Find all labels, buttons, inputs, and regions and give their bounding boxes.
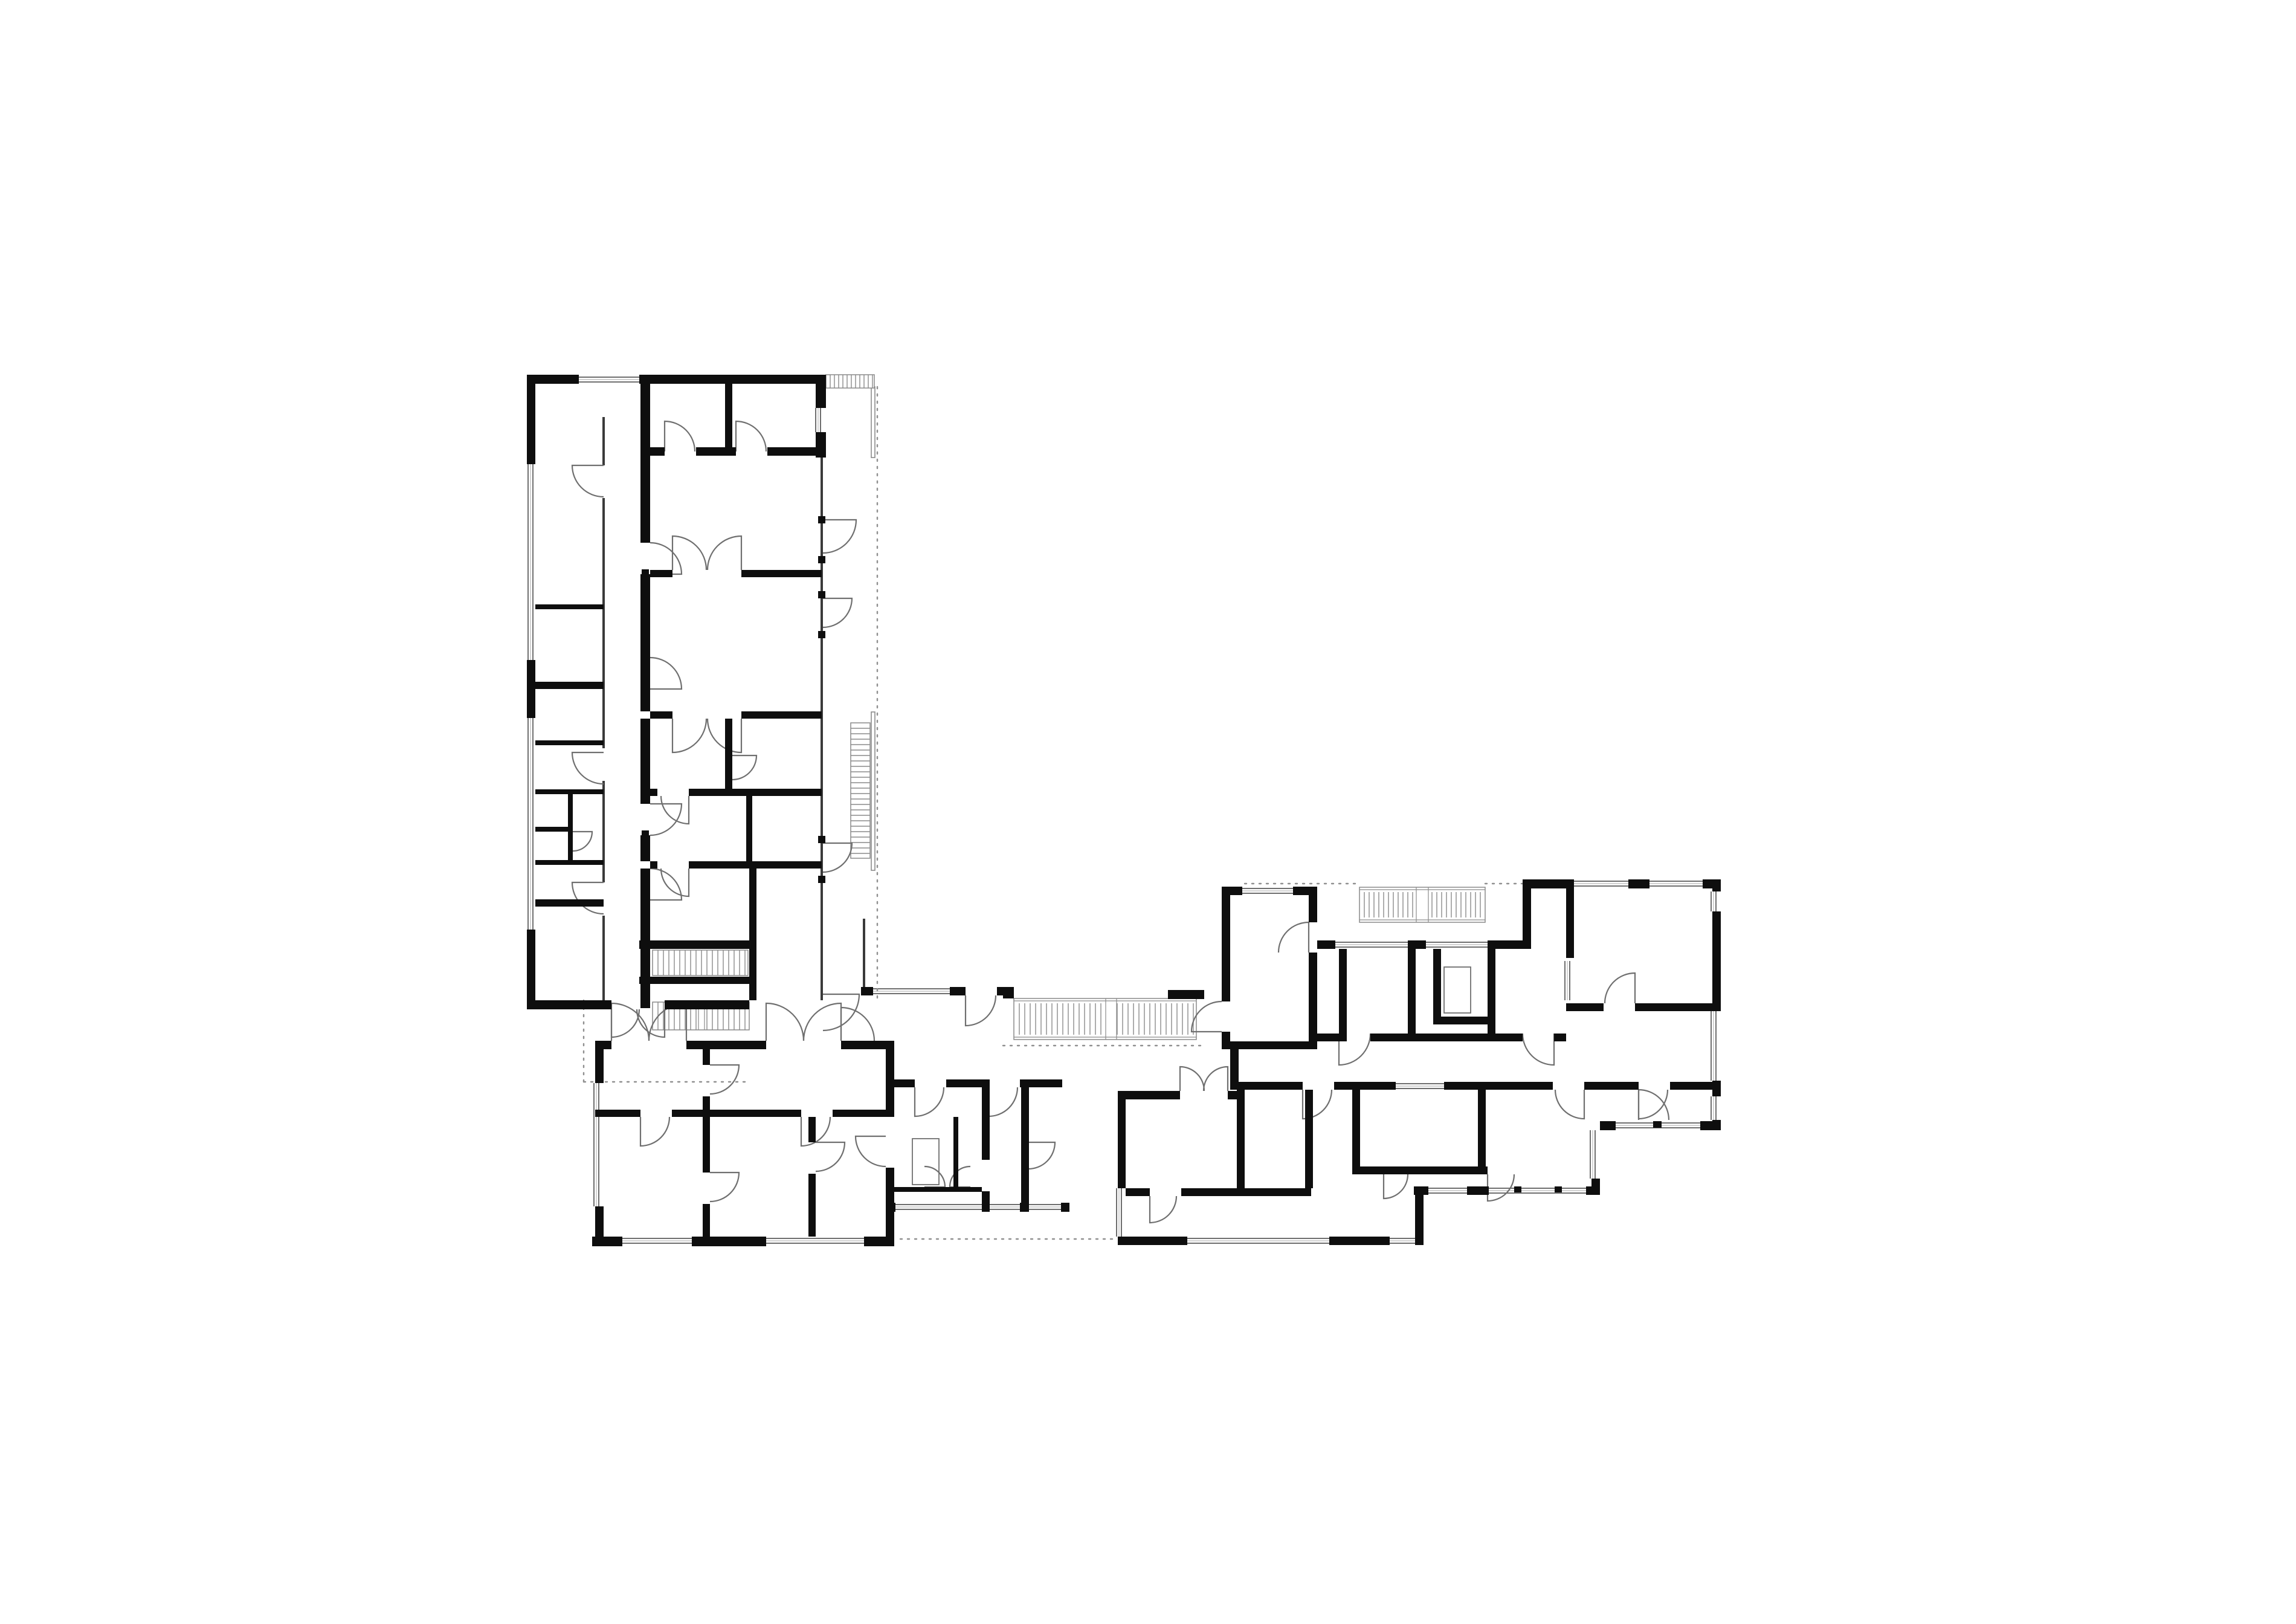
wall-segment <box>1488 1034 1523 1041</box>
floor-plan-figure <box>0 0 2296 1624</box>
wall-segment <box>1478 1090 1486 1166</box>
wall-segment <box>1670 1082 1712 1090</box>
floor-plan-page <box>0 0 2296 1624</box>
wall-segment <box>595 1110 640 1117</box>
wall-segment <box>535 604 604 609</box>
wall-segment <box>1309 953 1317 1041</box>
wall-segment <box>1352 1090 1360 1166</box>
wall-segment <box>725 719 732 789</box>
wall-segment <box>1222 887 1230 1001</box>
wall-segment <box>818 556 825 563</box>
wall-segment <box>1339 949 1347 1041</box>
stair <box>826 375 874 388</box>
wall-segment <box>535 740 604 745</box>
wall-segment <box>1566 1003 1604 1011</box>
wall-segment <box>950 987 966 995</box>
wall-segment <box>642 538 649 543</box>
wall-segment <box>1444 1082 1553 1090</box>
wall-segment <box>1523 879 1531 949</box>
wall-segment <box>1020 1203 1028 1212</box>
wall-segment <box>1126 1188 1150 1196</box>
wall-segment <box>1488 940 1529 949</box>
wall-segment <box>1168 990 1204 999</box>
wall-segment <box>894 1079 915 1087</box>
wall-segment <box>1712 1081 1721 1096</box>
wall-segment <box>703 1204 710 1237</box>
railing-edge <box>871 387 875 458</box>
wall-segment <box>1309 894 1317 922</box>
wall-segment <box>1305 1090 1313 1188</box>
stair <box>1359 887 1485 922</box>
wall-segment <box>1600 1121 1616 1130</box>
wall-segment <box>1061 1203 1069 1212</box>
wall-segment <box>535 860 604 865</box>
wall-segment <box>1237 1188 1311 1196</box>
wall-segment <box>1126 1091 1180 1099</box>
wall-segment <box>1467 1186 1489 1195</box>
wall-segment <box>535 899 604 907</box>
wall-segment <box>640 940 650 1008</box>
wall-segment <box>592 1237 622 1246</box>
stair-outline <box>851 723 870 858</box>
wall-segment <box>527 1000 611 1009</box>
shaft <box>912 1139 939 1185</box>
wall-segment <box>1488 949 1495 1041</box>
wall-segment <box>1566 879 1574 958</box>
wall-segment <box>686 1041 766 1049</box>
wall-segment <box>818 836 825 843</box>
wall-segment <box>535 682 604 689</box>
shaft <box>1444 967 1471 1013</box>
wall-segment <box>640 574 650 711</box>
wall-segment <box>1228 1091 1237 1099</box>
wall-segment <box>1555 1186 1562 1192</box>
wall-segment <box>1554 1034 1566 1041</box>
wall-segment <box>703 1041 710 1065</box>
wall-segment <box>818 591 825 598</box>
wall-segment <box>689 789 822 796</box>
wall-segment <box>1653 1121 1662 1128</box>
wall-segment <box>639 375 826 384</box>
wall-segment <box>1712 911 1721 1011</box>
wall-segment <box>1424 1166 1488 1174</box>
wall-segment <box>642 895 649 900</box>
wall-segment <box>816 384 826 408</box>
wall-segment <box>650 447 665 456</box>
wall-segment <box>642 684 649 689</box>
wall-segment <box>568 789 573 860</box>
wall-segment <box>1433 1034 1488 1041</box>
wall-segment <box>1222 1032 1230 1049</box>
wall-segment <box>1230 1049 1239 1090</box>
wall-segment <box>595 1206 604 1237</box>
wall-segment <box>650 789 657 796</box>
paper-background <box>0 0 2296 1624</box>
wall-segment <box>640 835 650 861</box>
wall-segment <box>535 827 573 832</box>
wall-segment <box>639 940 754 949</box>
wall-segment <box>703 1096 710 1110</box>
wall-segment <box>741 570 822 577</box>
stair-outline <box>826 375 874 388</box>
wall-segment <box>1370 1034 1433 1041</box>
floor-plan-canvas <box>0 0 2296 1624</box>
wall-segment <box>642 799 649 804</box>
wall-segment <box>595 1041 604 1083</box>
wall-segment <box>808 1117 816 1142</box>
wall-segment <box>1712 879 1721 891</box>
wall-segment <box>808 1174 816 1237</box>
wall-segment <box>1433 1017 1488 1024</box>
wall-segment <box>650 711 672 719</box>
wall-segment <box>1329 1237 1390 1245</box>
stair <box>851 723 870 858</box>
wall-segment <box>818 631 825 638</box>
wall-segment <box>642 569 649 574</box>
wall-segment <box>1334 1082 1396 1090</box>
wall-segment <box>1230 1041 1317 1049</box>
wall-segment <box>833 1110 894 1117</box>
wall-segment <box>527 375 535 464</box>
wall-segment <box>818 516 825 523</box>
wall-segment <box>650 570 672 577</box>
wall-segment <box>640 719 650 804</box>
wall-segment <box>672 1110 801 1117</box>
stair-outline <box>1359 887 1485 922</box>
wall-segment <box>1239 1082 1303 1090</box>
wall-segment <box>527 930 535 1009</box>
wall-segment <box>1635 1003 1712 1011</box>
wall-segment <box>650 861 657 869</box>
wall-segment <box>1118 1237 1187 1245</box>
wall-segment <box>1408 949 1416 1041</box>
wall-segment <box>861 987 873 995</box>
wall-segment <box>1584 1082 1639 1090</box>
wall-segment <box>1237 1090 1245 1188</box>
wall-segment <box>1118 1091 1126 1188</box>
wall-segment <box>1529 879 1566 888</box>
wall-segment <box>1317 1034 1339 1041</box>
wall-segment <box>1415 1186 1424 1245</box>
wall-segment <box>639 977 754 984</box>
wall-segment <box>1433 949 1441 1024</box>
wall-segment <box>642 927 649 931</box>
wall-segment <box>982 1191 990 1212</box>
wall-segment <box>953 1117 958 1189</box>
wall-segment <box>886 1203 895 1212</box>
stair <box>1014 998 1196 1040</box>
wall-segment <box>818 876 825 883</box>
wall-segment <box>1293 887 1317 895</box>
wall-segment <box>725 384 732 447</box>
wall-segment <box>1003 990 1014 998</box>
wall-segment <box>1414 1186 1428 1195</box>
wall-segment <box>1586 1186 1600 1195</box>
wall-segment <box>642 653 649 658</box>
wall-segment <box>886 1041 894 1113</box>
wall-segment <box>703 1117 710 1173</box>
wall-segment <box>1181 1188 1237 1196</box>
wall-segment <box>894 1187 982 1192</box>
wall-segment <box>1021 1079 1029 1212</box>
wall-segment <box>642 830 649 835</box>
wall-segment <box>749 869 756 1000</box>
wall-segment <box>692 1237 766 1246</box>
wall-segment <box>746 796 752 861</box>
wall-segment <box>767 447 822 456</box>
wall-segment <box>689 861 822 869</box>
wall-segment <box>665 1000 749 1009</box>
wall-segment <box>1408 940 1426 949</box>
wall-segment <box>982 1079 990 1160</box>
wall-segment <box>527 660 535 718</box>
wall-segment <box>640 384 650 543</box>
wall-segment <box>1514 1186 1521 1192</box>
railing-edge <box>871 712 875 870</box>
wall-segment <box>1628 879 1649 888</box>
wall-segment <box>741 711 822 719</box>
wall-segment <box>696 447 736 456</box>
wall-segment <box>1700 1121 1721 1130</box>
wall-segment <box>1352 1166 1424 1174</box>
wall-segment <box>1317 940 1335 949</box>
stair <box>653 950 748 975</box>
